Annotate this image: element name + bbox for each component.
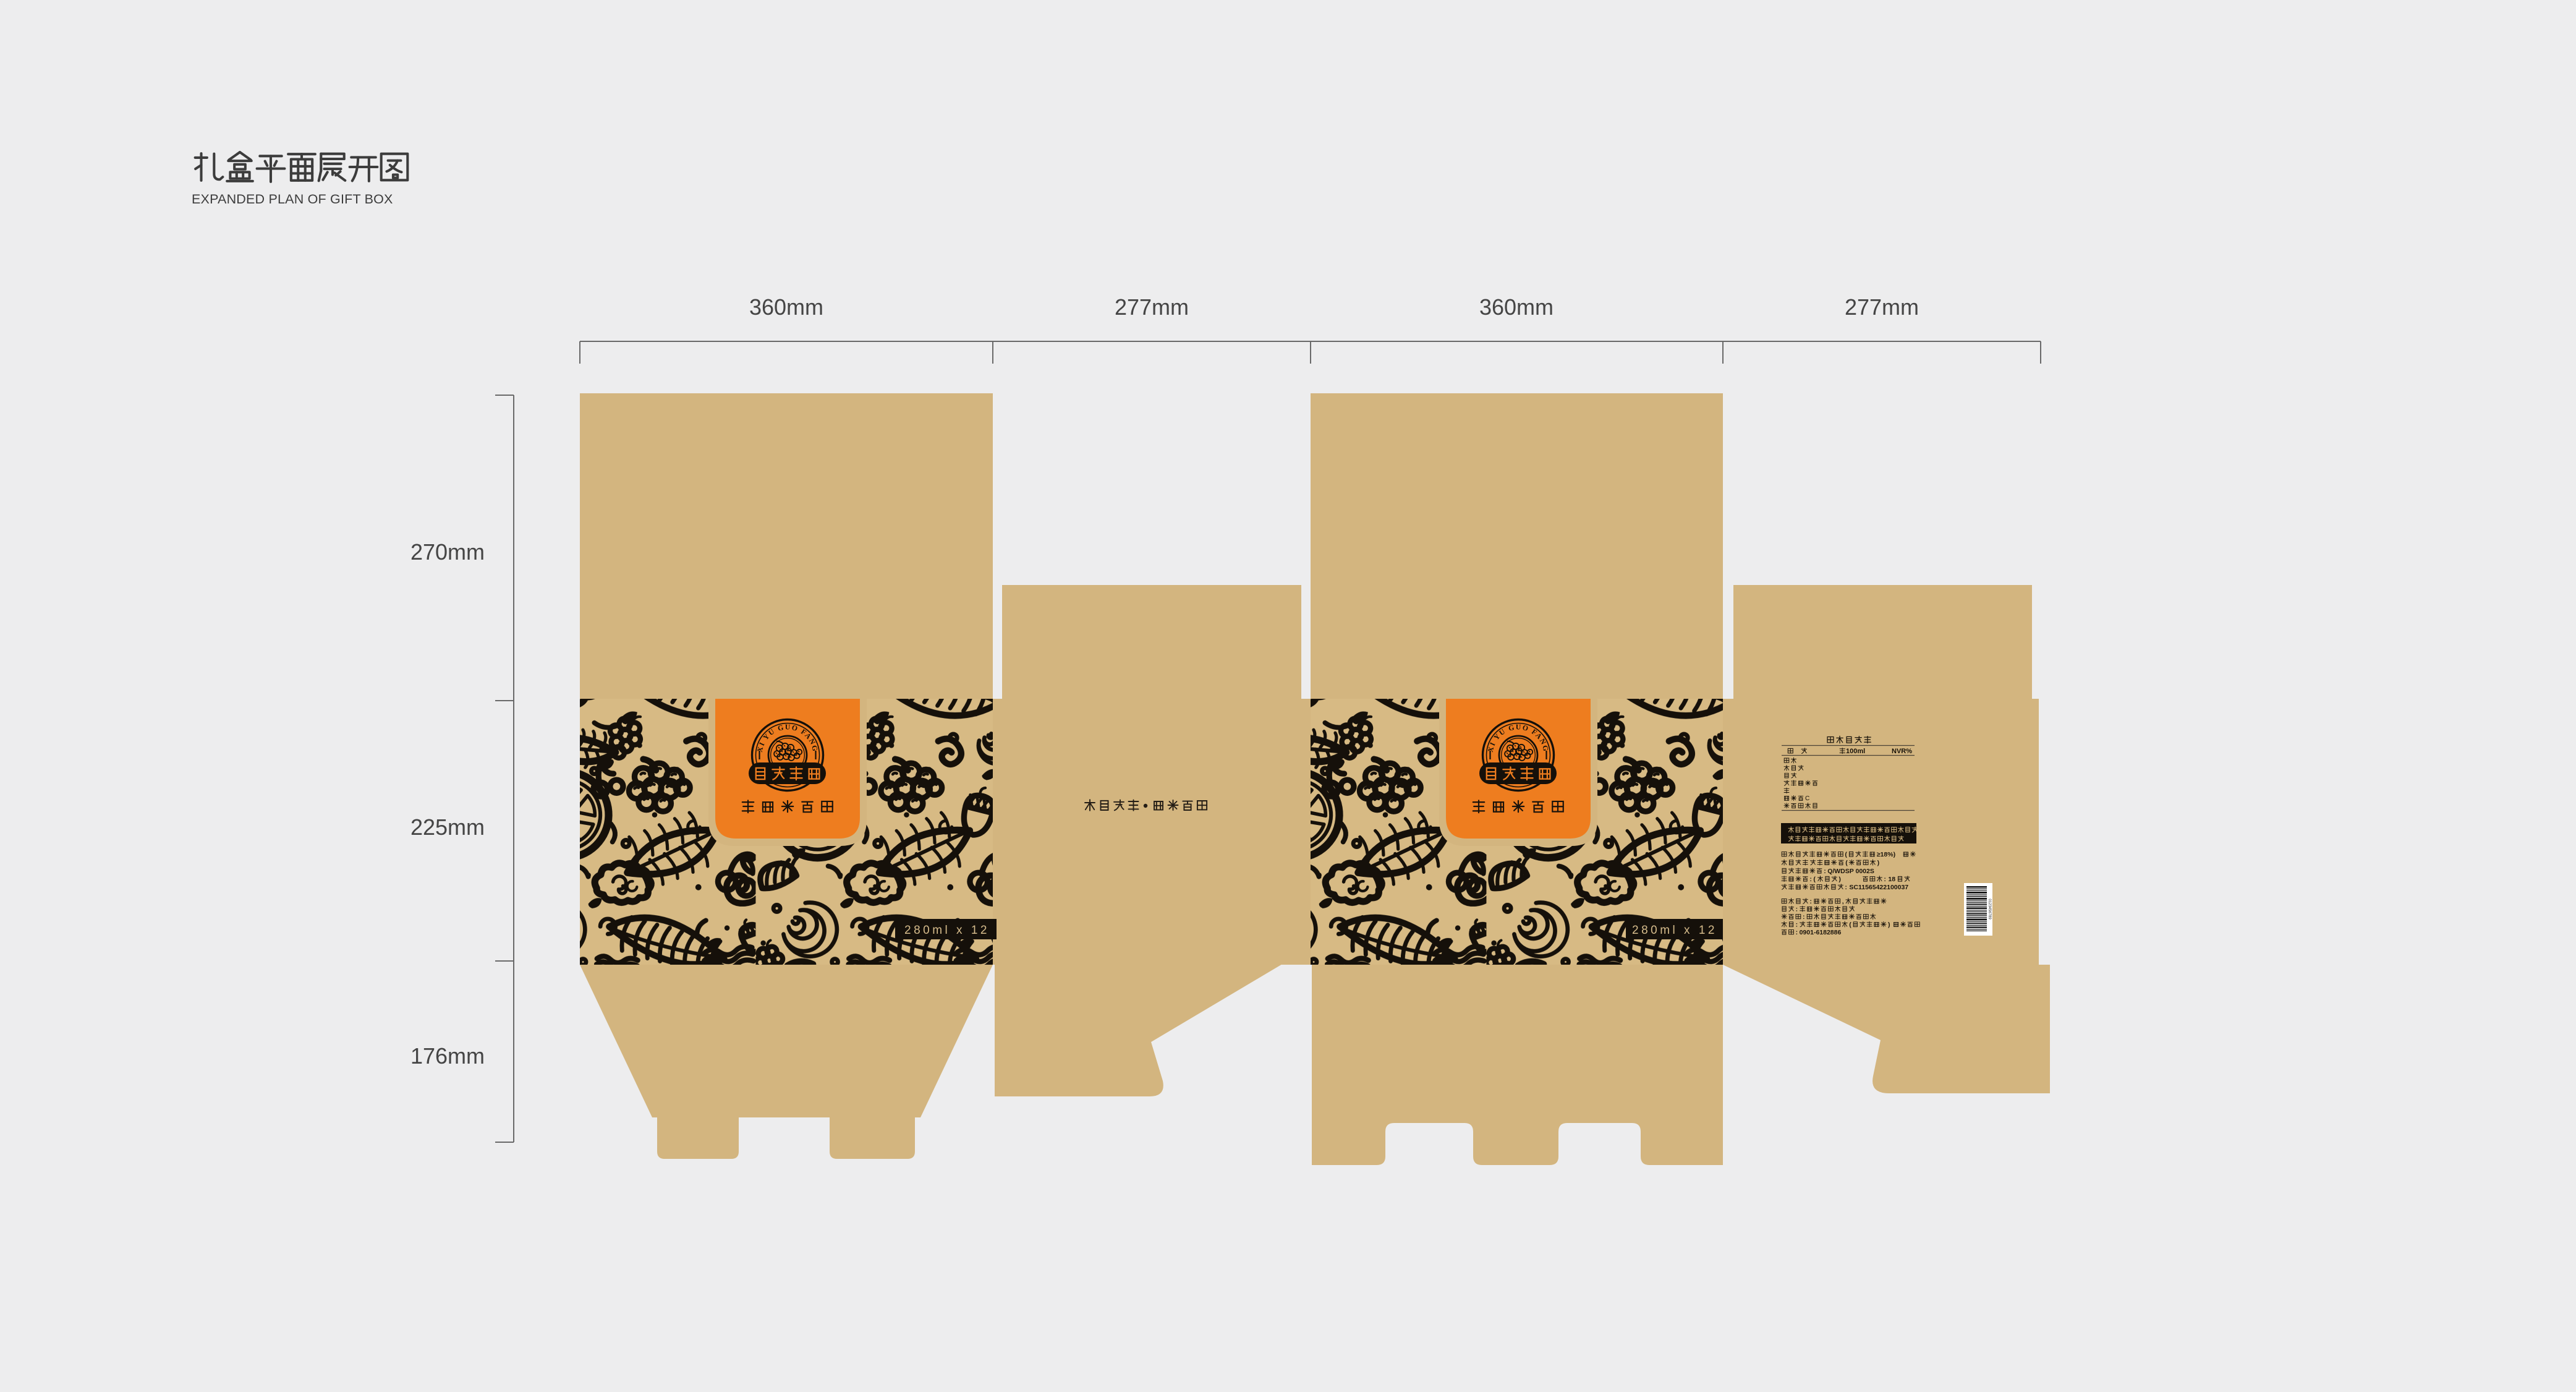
svg-text::: : — [1845, 884, 1847, 891]
svg-text:,: , — [1842, 898, 1844, 905]
svg-text:C: C — [1805, 795, 1809, 802]
svg-text:EXPANDED PLAN OF GIFT BOX: EXPANDED PLAN OF GIFT BOX — [192, 192, 393, 207]
svg-text:): ) — [1888, 921, 1890, 928]
svg-text:≥18%): ≥18%) — [1877, 851, 1895, 858]
svg-text:360mm: 360mm — [749, 294, 823, 320]
svg-text:SC11565422100037: SC11565422100037 — [1849, 884, 1908, 891]
svg-text::: : — [1796, 921, 1798, 928]
svg-text:0123456789: 0123456789 — [1987, 899, 1991, 920]
svg-text::: : — [1809, 876, 1812, 883]
svg-text::: : — [1884, 876, 1886, 883]
svg-text:0901-6182886: 0901-6182886 — [1800, 929, 1842, 936]
svg-text:280ml x 12: 280ml x 12 — [1632, 924, 1717, 937]
svg-text:(: ( — [1813, 876, 1816, 883]
svg-text:(: ( — [1845, 859, 1848, 866]
svg-text::: : — [1809, 898, 1812, 905]
svg-text:280ml x 12: 280ml x 12 — [904, 924, 990, 937]
svg-text:(: ( — [1845, 851, 1847, 858]
svg-text::: : — [1796, 929, 1798, 936]
svg-text:Q/WDSP 0002S: Q/WDSP 0002S — [1827, 868, 1874, 875]
svg-text::: : — [1824, 868, 1826, 875]
svg-text:225mm: 225mm — [410, 814, 485, 840]
svg-text:18: 18 — [1888, 876, 1895, 883]
svg-text:270mm: 270mm — [410, 539, 485, 565]
svg-text::: : — [1796, 905, 1798, 913]
svg-text:(: ( — [1849, 921, 1851, 928]
svg-text:NVR%: NVR% — [1892, 748, 1912, 755]
svg-text:360mm: 360mm — [1479, 294, 1554, 320]
svg-text:): ) — [1877, 859, 1880, 866]
svg-text:176mm: 176mm — [410, 1043, 485, 1069]
svg-text:): ) — [1838, 876, 1841, 883]
svg-text::: : — [1803, 913, 1805, 921]
svg-text:277mm: 277mm — [1845, 294, 1919, 320]
svg-text:100ml: 100ml — [1846, 748, 1865, 755]
svg-text:277mm: 277mm — [1115, 294, 1189, 320]
